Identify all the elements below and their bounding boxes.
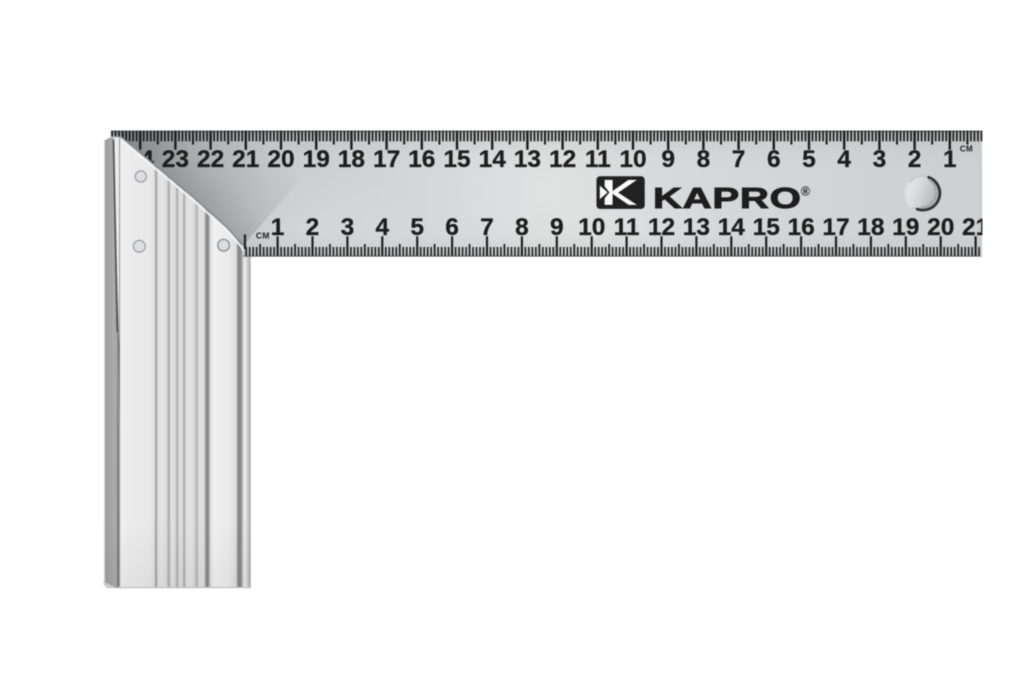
- svg-text:11: 11: [585, 146, 611, 173]
- svg-text:®: ®: [801, 185, 811, 199]
- svg-text:4: 4: [837, 146, 851, 173]
- svg-text:17: 17: [373, 146, 400, 173]
- svg-text:13: 13: [514, 146, 541, 173]
- svg-text:9: 9: [550, 214, 564, 241]
- svg-text:15: 15: [753, 214, 780, 241]
- svg-text:3: 3: [873, 146, 887, 173]
- svg-text:11: 11: [614, 214, 640, 241]
- svg-text:18: 18: [338, 146, 365, 173]
- svg-text:17: 17: [822, 214, 849, 241]
- svg-text:8: 8: [515, 214, 529, 241]
- svg-text:12: 12: [549, 146, 576, 173]
- svg-text:9: 9: [661, 146, 675, 173]
- svg-text:4: 4: [375, 214, 389, 241]
- svg-text:19: 19: [892, 214, 919, 241]
- svg-text:5: 5: [802, 146, 816, 173]
- svg-text:16: 16: [408, 146, 435, 173]
- svg-text:TM: TM: [639, 202, 645, 207]
- svg-text:22: 22: [197, 146, 224, 173]
- svg-text:23: 23: [162, 146, 189, 173]
- svg-text:10: 10: [619, 146, 646, 173]
- svg-text:20: 20: [267, 146, 294, 173]
- svg-text:8: 8: [697, 146, 711, 173]
- svg-text:7: 7: [480, 214, 494, 241]
- svg-text:12: 12: [648, 214, 675, 241]
- svg-text:6: 6: [445, 214, 459, 241]
- svg-text:1: 1: [943, 146, 957, 173]
- svg-text:19: 19: [303, 146, 330, 173]
- svg-text:1: 1: [271, 214, 285, 241]
- svg-text:15: 15: [443, 146, 470, 173]
- svg-text:16: 16: [787, 214, 814, 241]
- svg-text:14: 14: [718, 214, 746, 241]
- svg-text:5: 5: [410, 214, 424, 241]
- svg-text:KAPRO: KAPRO: [653, 182, 802, 214]
- svg-text:7: 7: [732, 146, 746, 173]
- svg-text:CM: CM: [256, 231, 270, 241]
- svg-text:13: 13: [683, 214, 710, 241]
- svg-text:2: 2: [908, 146, 922, 173]
- svg-text:6: 6: [767, 146, 781, 173]
- svg-text:3: 3: [341, 214, 355, 241]
- svg-text:10: 10: [578, 214, 605, 241]
- svg-text:14: 14: [479, 146, 507, 173]
- svg-text:21: 21: [232, 146, 259, 173]
- svg-text:18: 18: [857, 214, 884, 241]
- svg-text:2: 2: [306, 214, 320, 241]
- svg-text:CM: CM: [960, 144, 973, 153]
- svg-text:20: 20: [927, 214, 954, 241]
